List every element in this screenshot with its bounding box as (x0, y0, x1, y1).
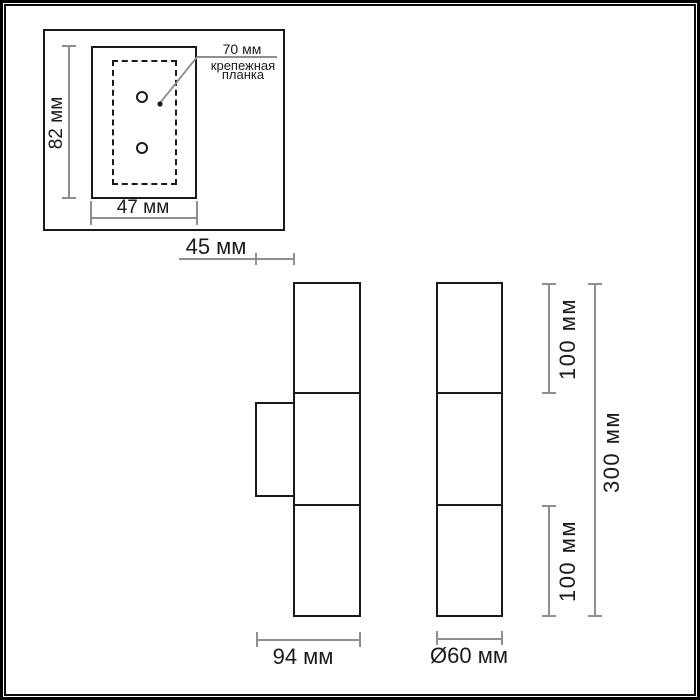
dim-line-94 (257, 639, 361, 641)
screw-hole-bottom (136, 142, 148, 154)
dim-cap-100-top-b (542, 392, 556, 394)
dim-cap-100-top-a (542, 283, 556, 285)
dim-line-300 (594, 283, 596, 617)
side-body-divider-bottom (436, 504, 503, 506)
side-view-body (436, 282, 503, 617)
wall-lamp-dimension-drawing: 82 мм 47 мм 70 мм крепежная планка 45 мм… (0, 0, 700, 700)
mounting-bar-callout: крепежная планка (211, 61, 275, 79)
dim-tick-45-left (255, 253, 257, 265)
dim-tick-45-right (293, 253, 295, 265)
dim-line-100-bottom (548, 505, 550, 617)
dim-label-70: 70 мм (223, 41, 262, 57)
dim-cap-82-top (62, 45, 76, 47)
dim-label-94: 94 мм (273, 644, 334, 670)
dim-cap-100-bottom-b (542, 615, 556, 617)
dim-label-45: 45 мм (186, 234, 247, 260)
dim-label-100-bottom: 100 мм (555, 520, 581, 602)
front-body-divider-bottom (293, 504, 361, 506)
dim-line-60 (436, 638, 503, 640)
side-body-divider-top (436, 392, 503, 394)
dim-ext-47-left (90, 201, 92, 225)
dim-cap-100-bottom-a (542, 505, 556, 507)
dim-label-82: 82 мм (46, 97, 68, 150)
front-view-body (293, 282, 361, 617)
screw-hole-top (136, 91, 148, 103)
dim-line-82 (68, 46, 70, 199)
dim-line-100-top (548, 283, 550, 394)
dim-cap-94-left (256, 632, 258, 647)
dim-ext-47-right (196, 201, 198, 225)
dim-cap-82-bottom (62, 197, 76, 199)
callout-leader (150, 48, 210, 110)
dim-label-300: 300 мм (599, 411, 625, 493)
wall-bracket (255, 402, 295, 497)
dim-label-60: Ø60 мм (430, 643, 508, 669)
dim-cap-94-right (359, 632, 361, 647)
callout-leader-line (160, 57, 197, 103)
dim-label-47: 47 мм (117, 197, 170, 219)
callout-leader-dot (157, 101, 162, 106)
dim-label-100-top: 100 мм (555, 298, 581, 380)
dim-cap-300-bottom (588, 615, 602, 617)
dim-cap-300-top (588, 283, 602, 285)
front-body-divider-top (293, 392, 361, 394)
